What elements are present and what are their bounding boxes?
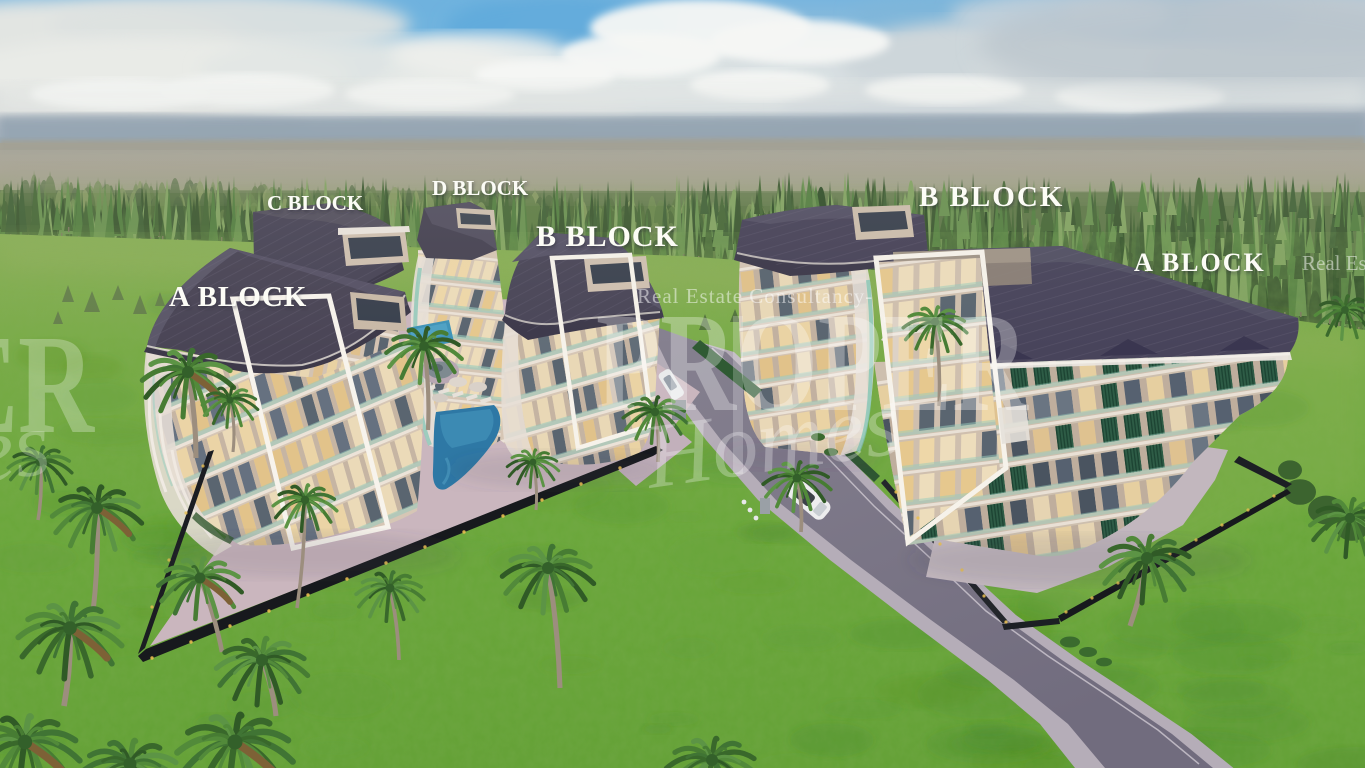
svg-text:C BLOCK: C BLOCK: [267, 191, 364, 215]
svg-text:D BLOCK: D BLOCK: [432, 176, 529, 200]
svg-text:A BLOCK: A BLOCK: [1134, 248, 1266, 277]
svg-text:B BLOCK: B BLOCK: [536, 220, 679, 253]
svg-text:A BLOCK: A BLOCK: [169, 281, 307, 313]
svg-text:Real Es: Real Es: [1302, 251, 1365, 275]
svg-text:B BLOCK: B BLOCK: [919, 181, 1064, 213]
